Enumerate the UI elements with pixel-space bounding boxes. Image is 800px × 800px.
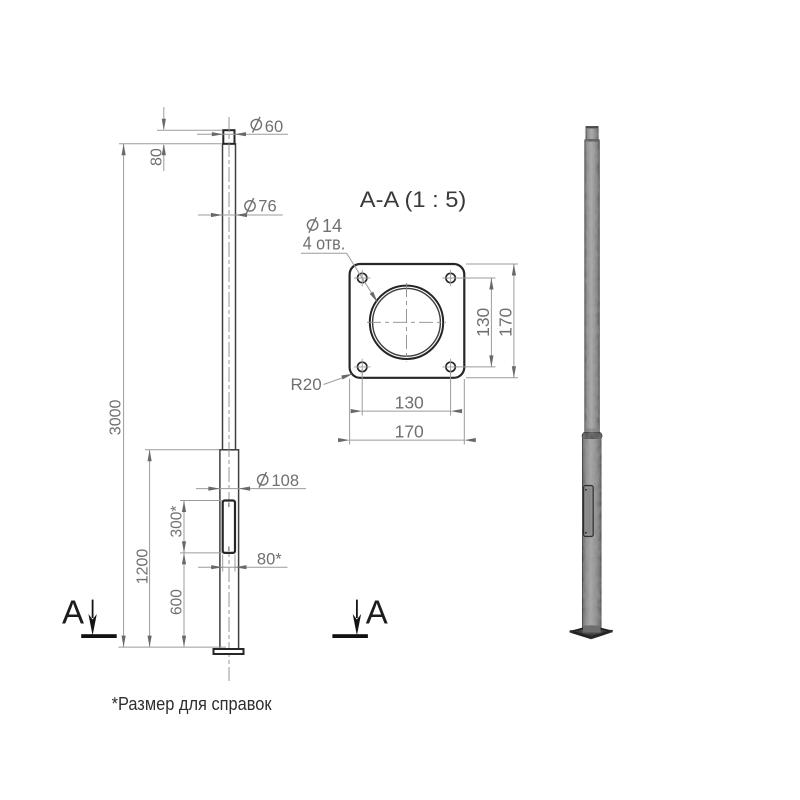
svg-text:A: A (62, 594, 84, 631)
svg-text:A: A (366, 593, 388, 630)
svg-text:600: 600 (169, 589, 186, 615)
svg-text:300*: 300* (169, 506, 186, 538)
svg-text:60: 60 (265, 118, 283, 136)
svg-text:76: 76 (258, 198, 276, 216)
svg-text:80: 80 (149, 148, 166, 166)
svg-text:130: 130 (473, 307, 493, 336)
svg-text:1200: 1200 (134, 549, 151, 585)
svg-text:3000: 3000 (107, 400, 124, 436)
svg-text:A-A (1 : 5): A-A (1 : 5) (360, 187, 467, 212)
svg-text:170: 170 (496, 307, 516, 336)
svg-text:108: 108 (272, 472, 300, 490)
svg-text:4 отв.: 4 отв. (303, 234, 346, 254)
svg-text:130: 130 (395, 393, 424, 413)
svg-text:R20: R20 (291, 375, 322, 394)
svg-text:80*: 80* (257, 550, 282, 568)
svg-text:*Размер для справок: *Размер для справок (112, 693, 273, 714)
svg-text:170: 170 (395, 422, 424, 442)
